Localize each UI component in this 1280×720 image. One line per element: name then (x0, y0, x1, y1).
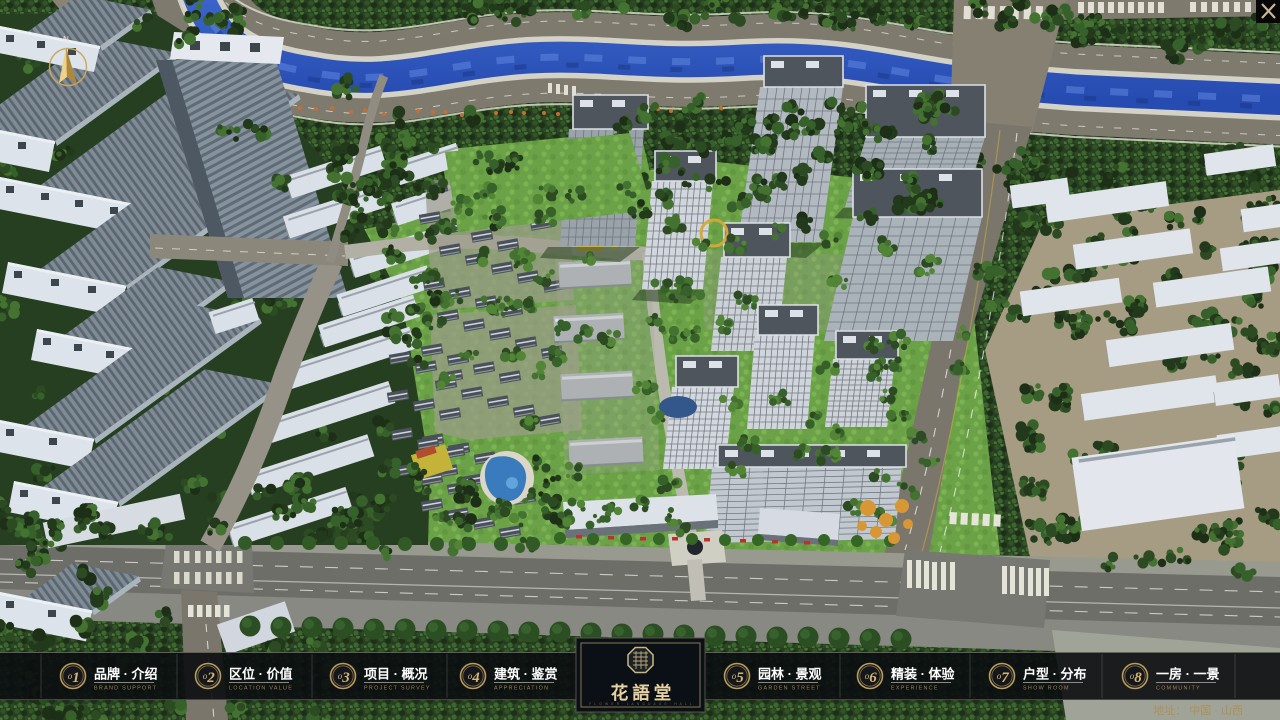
svg-text:区位 · 价值: 区位 · 价值 (229, 667, 293, 682)
svg-text:精装 · 体验: 精装 · 体验 (891, 667, 956, 682)
svg-text:户型 · 分布: 户型 · 分布 (1023, 667, 1087, 682)
svg-text:5: 5 (736, 670, 744, 686)
svg-text:EXPERIENCE: EXPERIENCE (891, 686, 939, 692)
svg-text:PROJECT SURVEY: PROJECT SURVEY (364, 686, 431, 692)
svg-text:SHOW ROOM: SHOW ROOM (1023, 686, 1070, 692)
svg-text:LOCATION VALUE: LOCATION VALUE (229, 686, 293, 692)
svg-text:N: N (63, 35, 69, 44)
svg-text:COMMUNITY: COMMUNITY (1156, 686, 1201, 692)
svg-text:3: 3 (341, 670, 350, 686)
svg-text:GARDEN STREET: GARDEN STREET (758, 686, 821, 692)
svg-text:地址： 中国 · 山西: 地址： 中国 · 山西 (1153, 703, 1243, 717)
svg-text:园林 · 景观: 园林 · 景观 (758, 667, 822, 682)
svg-text:APPRECIATION: APPRECIATION (494, 686, 549, 692)
svg-text:4: 4 (471, 670, 480, 686)
svg-text:1: 1 (72, 670, 80, 686)
svg-text:2: 2 (206, 670, 215, 686)
svg-text:6: 6 (869, 670, 877, 686)
svg-text:花語堂: 花語堂 (611, 683, 676, 703)
svg-text:建筑 · 鉴赏: 建筑 · 鉴赏 (494, 667, 558, 682)
svg-text:品牌 · 介绍: 品牌 · 介绍 (94, 667, 158, 682)
svg-text:F L O W E R · L A N G U A G E: F L O W E R · L A N G U A G E · H A L L (589, 702, 693, 706)
svg-text:BRAND SUPPORT: BRAND SUPPORT (94, 686, 157, 692)
svg-text:项目 · 概况: 项目 · 概况 (364, 667, 428, 682)
svg-text:8: 8 (1134, 670, 1142, 686)
svg-text:7: 7 (1001, 670, 1009, 686)
svg-text:一房 · 一景: 一房 · 一景 (1156, 667, 1220, 682)
